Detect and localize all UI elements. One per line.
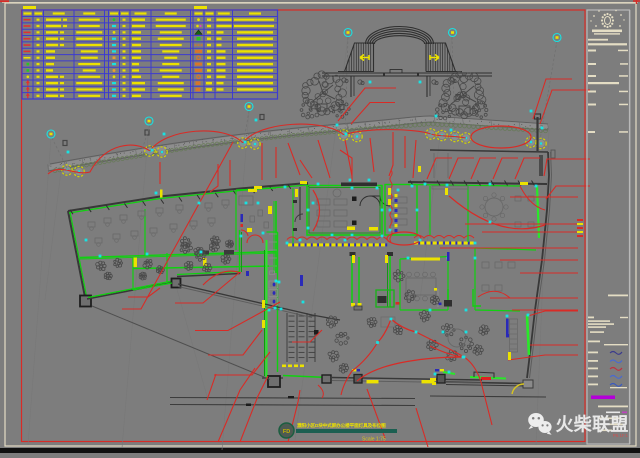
svg-text:FD: FD xyxy=(283,429,290,435)
svg-text:Scale 1:75: Scale 1:75 xyxy=(362,437,386,443)
svg-text:濮阳小区D块中式屏办公楼平面灯具及布位图: 濮阳小区D块中式屏办公楼平面灯具及布位图 xyxy=(297,422,386,429)
svg-text:火柴联盟: 火柴联盟 xyxy=(556,414,629,435)
